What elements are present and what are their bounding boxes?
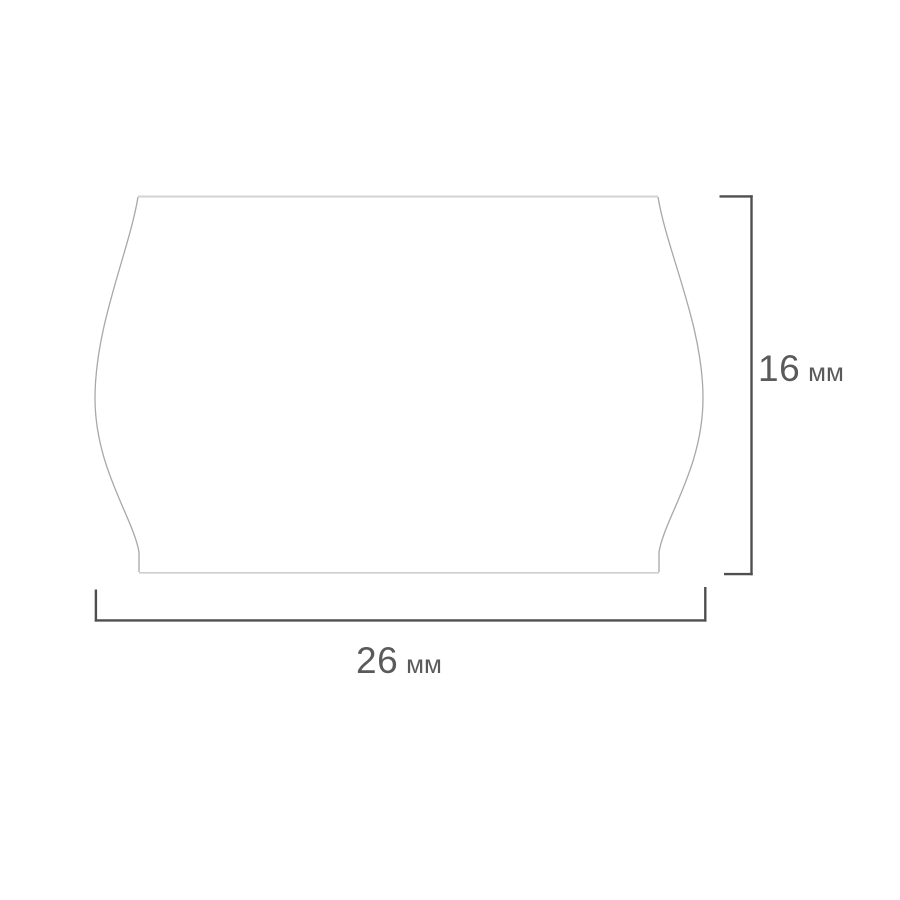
label-outline	[95, 197, 703, 573]
width-dimension-bracket	[95, 587, 707, 622]
label-left-edge	[95, 197, 139, 572]
height-dimension-bracket	[720, 195, 753, 575]
height-value: 16	[758, 350, 800, 387]
diagram-stage: 16 мм 26 мм	[0, 0, 900, 900]
label-diagram-svg	[0, 0, 900, 900]
label-right-edge	[658, 197, 703, 572]
height-dimension-label: 16 мм	[758, 350, 844, 387]
width-value: 26	[356, 642, 398, 679]
height-unit: мм	[808, 359, 844, 385]
width-dimension-label: 26 мм	[356, 642, 442, 679]
width-unit: мм	[406, 651, 442, 677]
